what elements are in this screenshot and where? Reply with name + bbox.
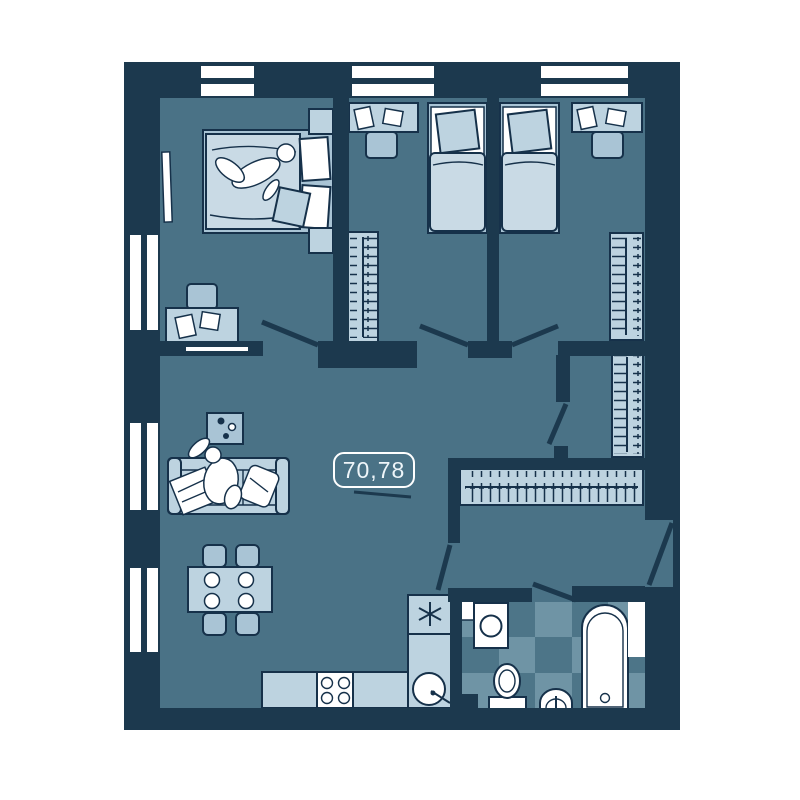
fridge-icon: [408, 595, 452, 634]
dining-chair: [203, 613, 226, 635]
wall-tv-icon: [162, 152, 172, 222]
dining-chair: [236, 613, 259, 635]
dining-chair: [236, 545, 259, 567]
floor-plan-svg: [0, 0, 800, 800]
wardrobe: [348, 232, 378, 342]
single-bed: [428, 103, 487, 233]
wardrobe: [612, 352, 643, 457]
floor-plan-page: 70,78: [0, 0, 800, 800]
dining-chair: [203, 545, 226, 567]
dining-table: [188, 567, 272, 612]
nightstand: [309, 109, 333, 134]
stove-icon: [317, 672, 353, 708]
double-bed: [203, 130, 333, 233]
single-bed: [500, 103, 559, 233]
bathtub-icon: [582, 605, 628, 712]
wardrobe: [610, 233, 643, 340]
tv-icon: [186, 347, 248, 351]
coffee-table: [207, 413, 243, 444]
nightstand: [309, 228, 333, 253]
area-label[interactable]: 70,78: [333, 452, 415, 488]
wardrobe: [460, 468, 643, 505]
